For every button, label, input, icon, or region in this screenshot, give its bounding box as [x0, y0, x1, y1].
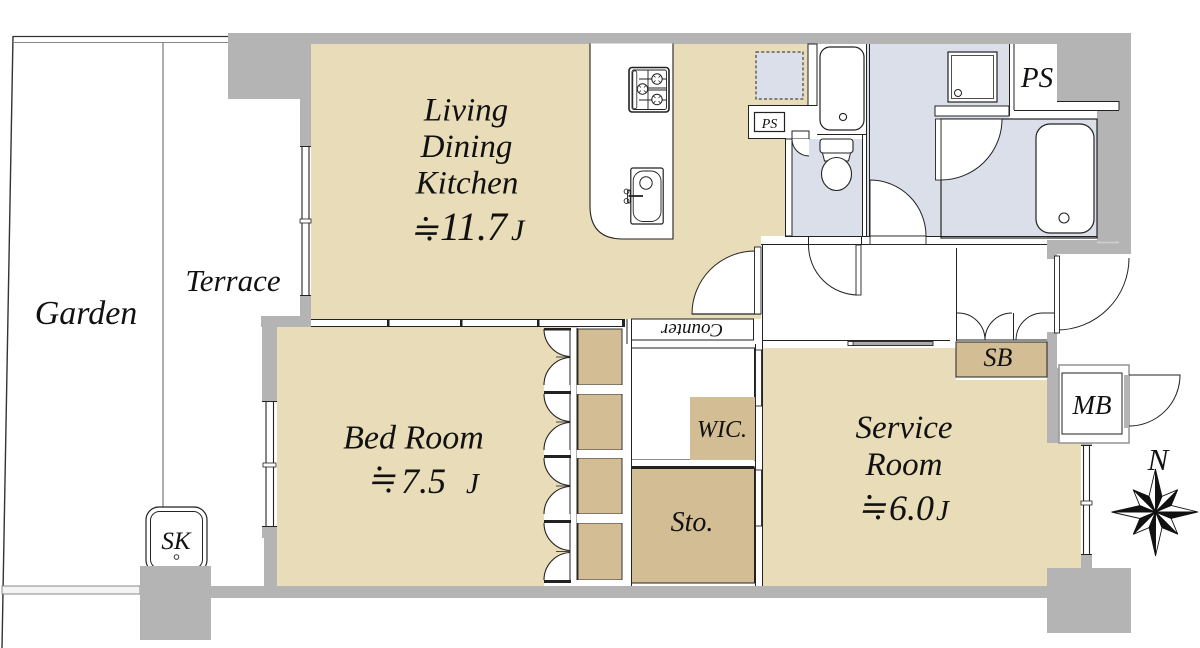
svg-text:7.5: 7.5	[401, 461, 446, 501]
svg-text:6.0: 6.0	[889, 488, 934, 528]
svg-text:J: J	[466, 468, 480, 500]
svg-text:N: N	[1147, 442, 1171, 477]
svg-text:11.7: 11.7	[440, 204, 509, 249]
svg-text:WIC.: WIC.	[697, 417, 747, 443]
svg-text:PS: PS	[1020, 62, 1054, 94]
svg-text:Living: Living	[423, 93, 508, 129]
svg-text:Garden: Garden	[35, 295, 138, 332]
svg-text:SK: SK	[161, 528, 192, 555]
svg-text:PS: PS	[761, 117, 778, 132]
svg-text:Service: Service	[855, 410, 952, 446]
svg-text:Bed Room: Bed Room	[343, 420, 484, 457]
svg-text:Terrace: Terrace	[185, 263, 281, 298]
svg-text:Room: Room	[865, 447, 943, 483]
svg-text:Kitchen: Kitchen	[415, 166, 519, 202]
svg-text:Counter: Counter	[660, 319, 723, 340]
svg-text:Sto.: Sto.	[671, 507, 714, 538]
svg-text:J: J	[511, 214, 526, 247]
svg-text:MB: MB	[1072, 390, 1112, 420]
svg-text:Dining: Dining	[420, 129, 513, 165]
svg-text:SB: SB	[984, 343, 1013, 372]
svg-text:J: J	[936, 495, 950, 527]
